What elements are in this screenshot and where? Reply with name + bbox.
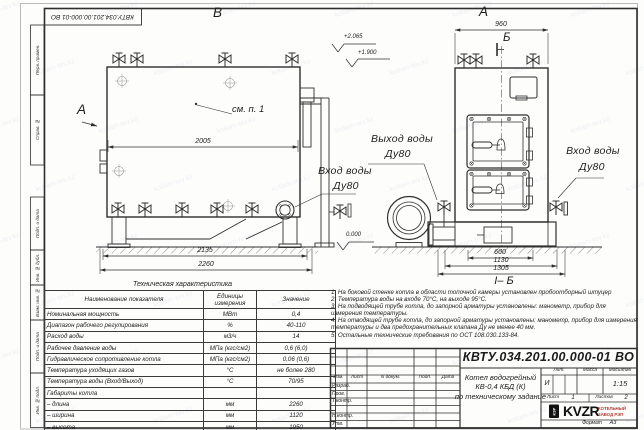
spec-cell: 70/95 (257, 376, 336, 387)
spec-cell: м3/ч (204, 331, 257, 342)
tb-sheets-label: Листов (595, 396, 612, 401)
tb-sheet-value: 1 (571, 395, 574, 401)
spec-cell: 40-110 (257, 320, 336, 331)
spec-cell: Температура воды (Вход/Выход) (45, 376, 204, 387)
spec-row: – длинамм2260 (45, 399, 336, 410)
spec-cell: 1120 (257, 410, 336, 421)
tb-mass-label: Масса (583, 369, 597, 374)
spec-table-title: Техническая характеристика (44, 281, 321, 288)
tb-format-label: Формат (582, 421, 602, 426)
note-item: 5. Остальные технические требования по О… (331, 332, 637, 339)
tb-name-line1: Котел водогрейный (465, 374, 536, 382)
tb-sheets-value: 2 (624, 395, 627, 401)
margin-label: Взам. инв. № (31, 285, 44, 320)
spec-cell: Диапазон рабочего регулирования (45, 320, 204, 331)
spec-cell: 2260 (257, 399, 336, 410)
tb-format-value: А3 (610, 421, 617, 427)
top-frame-stamp: КВТУ.034.201.00.000-01 ВО (44, 9, 141, 24)
dimension-660: 660 (494, 249, 506, 256)
spec-cell: Температура уходящих газов (45, 365, 204, 376)
view-b-direction-letter: А (77, 103, 86, 117)
notes-block: 1. На боковой стенке котла в области топ… (331, 289, 637, 339)
spec-row: Диапазон рабочего регулирования%40-110 (45, 320, 336, 331)
spec-row: Расход водым3/ч14 (45, 331, 336, 342)
spec-cell (204, 388, 257, 399)
spec-cell: 0,06 (0,6) (257, 354, 336, 365)
tb-lit-label: Лит. (553, 369, 564, 374)
spec-cell: не более 280 (257, 365, 336, 376)
view-a-letter: А (479, 5, 488, 19)
section-title: І– Б (494, 276, 513, 287)
spec-cell: – длина (45, 399, 204, 410)
spec-cell: МПа (кгс/см2) (204, 354, 257, 365)
spec-cell: Номинальная мощность (45, 309, 204, 320)
margin-label: Подп. и дата (31, 197, 44, 250)
spec-row: Номинальная мощностьМВт0,4 (45, 309, 336, 320)
spec-cell: мм (204, 421, 257, 430)
spec-cell: Габариты котла (45, 388, 204, 399)
tb-lit-value: И (544, 380, 549, 387)
spec-cell: °С (204, 365, 257, 376)
tb-col-data: Дата (442, 376, 455, 381)
spec-cell: 1950 (257, 421, 336, 430)
spec-header-cell: Значение (257, 291, 336, 309)
tb-logo-sub1: КОТЕЛЬНЫЙ (598, 407, 626, 411)
spec-cell: % (204, 320, 257, 331)
tb-logo-text: KVZR (563, 404, 599, 418)
margin-label: Инв. № подл. (31, 373, 44, 428)
spec-row: Габариты котла (45, 388, 336, 399)
note-item: 1. На боковой стенке котла в области топ… (331, 289, 637, 296)
logo-mark: КЗР (549, 405, 559, 419)
tb-col-doc: N докум. (381, 376, 400, 381)
spec-header-cell: Единицы измерения (204, 291, 257, 309)
spec-cell: °С (204, 376, 257, 387)
spec-cell: мм (204, 399, 257, 410)
inlet-water-right-label: Вход воды (566, 146, 620, 157)
spec-row: Температура воды (Вход/Выход)°С70/95 (45, 376, 336, 387)
tb-logo-sub2: ЗАВОД РЭП (598, 413, 623, 417)
spec-cell: Рабочее давление воды (45, 342, 204, 353)
tb-doc-number: КВТУ.034.201.00.000-01 ВО (463, 351, 634, 364)
inlet-water-left-dn: Ду80 (333, 181, 359, 192)
tb-col-podp: Подп. (419, 376, 432, 381)
dimension-2135: 2135 (197, 247, 213, 254)
tb-scale-label: Масштаб (609, 369, 631, 374)
see-note: см. п. 1 (232, 105, 264, 115)
tb-col-list: Лист (351, 376, 363, 381)
elevation-mid: +1.900 (358, 50, 377, 56)
inlet-water-left-label: Вход воды (318, 166, 372, 177)
dimension-2005: 2005 (195, 138, 211, 145)
note-item: 4. На отводящей трубе котла, до запорной… (331, 317, 637, 331)
spec-cell: – ширина (45, 410, 204, 421)
spec-row: – высотамм1950 (45, 421, 336, 430)
spec-cell: Гидравлическое сопротивление котла (45, 354, 204, 365)
spec-header-cell: Наименование показателя (45, 291, 204, 309)
spec-cell: МПа (кгс/см2) (204, 342, 257, 353)
dimension-2260: 2260 (198, 261, 214, 268)
tb-sheet-label: Лист (547, 396, 559, 401)
inlet-water-right-dn: Ду80 (579, 162, 605, 173)
elevation-top: +2.065 (344, 34, 363, 40)
dimension-1130: 1130 (493, 257, 508, 264)
dimension-1305: 1305 (493, 265, 509, 272)
spec-cell: мм (204, 410, 257, 421)
spec-cell: МВт (204, 309, 257, 320)
margin-label: Подп. и дата (31, 320, 44, 373)
note-item: 2. Температура воды на входе 70°С, на вы… (331, 296, 637, 303)
margin-label: Инв. № дубл. (31, 250, 44, 285)
spec-cell: – высота (45, 421, 204, 430)
spec-row: Гидравлическое сопротивление котлаМПа (к… (45, 354, 336, 365)
spec-cell: 0,6 (6,0) (257, 342, 336, 353)
spec-table: Наименование показателяЕдиницы измерения… (44, 290, 336, 430)
spec-cell (257, 388, 336, 399)
outlet-water-label: Выход воды (371, 134, 433, 145)
engineering-drawing-sheet: kotlam-tev.kzkotlam-tev.kzkotlam-tev.kzk… (0, 0, 644, 430)
spec-header-row: Наименование показателяЕдиницы измерения… (45, 291, 336, 309)
spec-cell: Расход воды (45, 331, 204, 342)
tb-scale-value: 1:15 (613, 380, 628, 388)
margin-label: Справ. № (31, 95, 44, 165)
tb-name-line3: по техническому задание (455, 393, 546, 401)
spec-row: Температура уходящих газов°Сне более 280 (45, 365, 336, 376)
spec-cell: 14 (257, 331, 336, 342)
dimension-960: 960 (495, 21, 507, 28)
view-b-letter: В (213, 6, 222, 20)
outlet-water-dn: Ду80 (385, 149, 411, 160)
note-item: 3. На подводящей трубе котла, до запорно… (331, 303, 637, 317)
tb-name-line2: КВ-0,4 КБД (К) (475, 383, 525, 391)
spec-row: Рабочее давление водыМПа (кгс/см2)0,6 (6… (45, 342, 336, 353)
margin-label: Перв. примен. (31, 25, 44, 95)
spec-row: – ширинамм1120 (45, 410, 336, 421)
elevation-zero: 0.000 (346, 232, 361, 238)
section-letter: Б (503, 33, 511, 45)
technical-characteristics-table: Техническая характеристика Наименование … (44, 281, 321, 430)
spec-cell: 0,4 (257, 309, 336, 320)
